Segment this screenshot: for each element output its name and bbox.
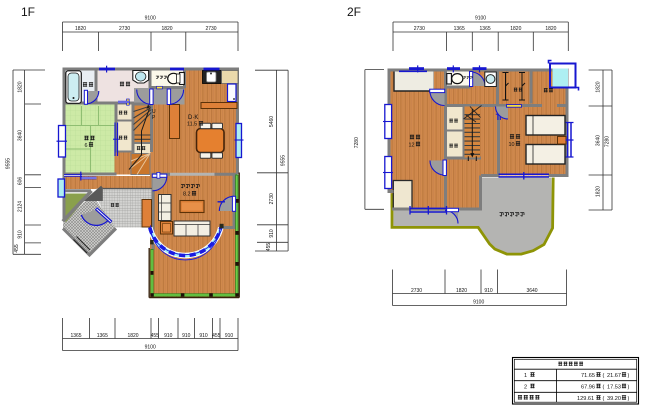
svg-text:7280: 7280 [354,137,360,148]
svg-text:1365: 1365 [97,333,108,339]
svg-text:10: 10 [509,142,515,148]
svg-text:8.2: 8.2 [183,192,191,198]
svg-text:1365: 1365 [70,333,81,339]
svg-text:1820: 1820 [456,288,467,294]
svg-text:910: 910 [199,333,208,339]
svg-text:455: 455 [266,243,272,252]
svg-text:2730: 2730 [411,288,422,294]
svg-text:1820: 1820 [75,26,86,32]
svg-text:12: 12 [409,143,415,149]
svg-text:1820: 1820 [596,81,602,92]
svg-text:455: 455 [14,244,20,253]
svg-text:1365: 1365 [454,26,465,32]
svg-text:1820: 1820 [596,186,602,197]
svg-text:606: 606 [18,177,24,186]
svg-text:71.65: 71.65 [581,373,595,379]
svg-text:455: 455 [212,333,221,339]
svg-text:910: 910 [164,333,173,339]
svg-text:(: ( [603,385,605,391]
svg-text:5460: 5460 [269,116,275,127]
svg-text:2730: 2730 [269,193,275,204]
svg-text:17.53: 17.53 [607,385,621,391]
svg-text:910: 910 [484,288,493,294]
svg-text:6: 6 [85,143,88,149]
svg-text:11.5: 11.5 [187,122,197,128]
svg-text:1: 1 [524,373,527,379]
svg-text:67.96: 67.96 [581,385,595,391]
svg-text:1820: 1820 [127,333,138,339]
svg-text:9555: 9555 [6,158,12,169]
svg-text:1820: 1820 [161,26,172,32]
svg-text:): ) [628,396,630,402]
svg-text:455: 455 [151,333,160,339]
svg-text:2F: 2F [347,5,361,19]
svg-text:3640: 3640 [596,135,602,146]
svg-text:910: 910 [225,333,234,339]
svg-text:7280: 7280 [605,136,611,147]
svg-text:129.61: 129.61 [577,396,594,402]
svg-text:910: 910 [18,230,24,239]
svg-text:(: ( [603,396,605,402]
svg-text:9555: 9555 [281,155,287,166]
svg-text:3640: 3640 [18,130,24,141]
svg-text:(: ( [603,373,605,379]
svg-text:2: 2 [524,385,527,391]
svg-text:2124: 2124 [18,201,24,212]
svg-text:2730: 2730 [414,26,425,32]
svg-text:9100: 9100 [145,345,156,351]
svg-text:1820: 1820 [545,26,556,32]
svg-text:1365: 1365 [480,26,491,32]
svg-text:910: 910 [269,229,275,238]
svg-text:2730: 2730 [205,26,216,32]
svg-text:21.67: 21.67 [607,373,621,379]
svg-text:1F: 1F [21,5,35,19]
svg-text:2730: 2730 [119,26,130,32]
svg-text:): ) [628,373,630,379]
svg-text:39.20: 39.20 [607,396,621,402]
svg-text:D·K: D·K [188,115,198,121]
svg-text:9100: 9100 [475,16,486,22]
svg-text:): ) [628,385,630,391]
svg-text:9100: 9100 [473,300,484,306]
svg-text:910: 910 [182,333,191,339]
svg-text:3640: 3640 [526,288,537,294]
svg-text:9100: 9100 [145,16,156,22]
svg-text:1820: 1820 [18,81,24,92]
svg-text:1820: 1820 [510,26,521,32]
